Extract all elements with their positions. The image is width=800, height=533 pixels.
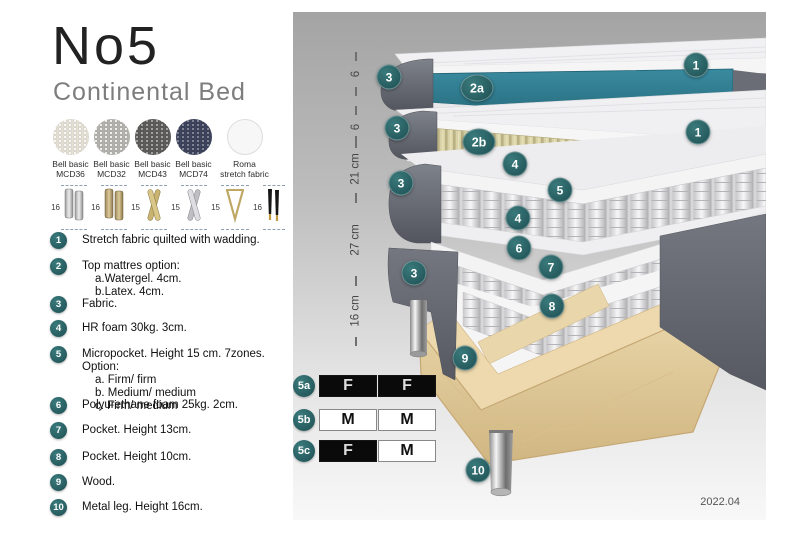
dimension-segment: 6	[343, 52, 369, 96]
dimension-tick	[355, 136, 357, 145]
spec-text: Fabric.	[82, 298, 117, 310]
version-label: 2022.04	[700, 496, 740, 508]
spec-text: Top mattres option:	[82, 260, 180, 272]
spec-number-badge: 7	[50, 422, 67, 439]
dimension-tick	[355, 337, 357, 346]
callout-badge: 3	[402, 261, 427, 286]
callout-badge: 6	[507, 236, 532, 261]
spec-list-item: 10 Metal leg. Height 16cm.	[50, 499, 203, 516]
spec-number-badge: 8	[50, 449, 67, 466]
dimension-tick	[355, 106, 357, 115]
dimension-segment: 27 cm	[343, 194, 369, 286]
callout-badge: 2b	[463, 129, 496, 156]
spec-list-item: 9 Wood.	[50, 474, 115, 491]
spec-list-item: 7 Pocket. Height 13cm.	[50, 422, 191, 439]
callout-badge: 10	[466, 458, 491, 483]
dimension-label: 27 cm	[350, 224, 362, 255]
spec-text: Wood.	[82, 476, 115, 488]
firmness-row: 5a F F	[293, 375, 437, 397]
callout-badge: 4	[506, 206, 531, 231]
spec-number-badge: 6	[50, 397, 67, 414]
spec-text: Polyurethane foam 25kg. 2cm.	[82, 399, 238, 411]
spec-number-badge: 1	[50, 232, 67, 249]
dimension-tick	[355, 276, 357, 285]
dimension-label: 6	[350, 71, 362, 77]
spec-list-item: 1 Stretch fabric quilted with wadding.	[50, 232, 260, 249]
spec-sheet: No5 Continental Bed Bell basic MCD36 Bel…	[0, 0, 800, 533]
spec-text: HR foam 30kg. 3cm.	[82, 322, 187, 334]
spec-number-badge: 9	[50, 474, 67, 491]
callout-badge: 7	[539, 255, 564, 280]
dimension-label: 16 cm	[350, 295, 362, 326]
callout-badge: 2a	[461, 75, 494, 102]
dimension-tick	[355, 52, 357, 61]
firmness-option-badge: 5a	[293, 375, 315, 397]
callout-badge: 3	[377, 65, 402, 90]
callout-badge: 5	[548, 178, 573, 203]
callout-badge: 9	[453, 346, 478, 371]
spec-list-item: 3 Fabric.	[50, 296, 117, 313]
spec-text: Pocket. Height 13cm.	[82, 424, 191, 436]
firmness-row: 5c F M	[293, 440, 437, 462]
spec-number-badge: 5	[50, 346, 67, 363]
spec-list: 1 Stretch fabric quilted with wadding. 2…	[50, 0, 300, 533]
spec-list-item: 8 Pocket. Height 10cm.	[50, 449, 191, 466]
dimension-segment: 16 cm	[343, 276, 369, 346]
spec-text: Micropocket. Height 15 cm. 7zones. Optio…	[82, 348, 265, 373]
callout-badge: 8	[540, 294, 565, 319]
firmness-cell: F	[378, 375, 436, 397]
dimension-label: 6	[350, 124, 362, 130]
callout-badge: 3	[389, 171, 414, 196]
dimension-tick	[355, 194, 357, 203]
dimension-tick	[355, 87, 357, 96]
dimension-segment: 21 cm	[343, 136, 369, 202]
spec-list-item: 4 HR foam 30kg. 3cm.	[50, 320, 187, 337]
spec-number-badge: 10	[50, 499, 67, 516]
diagram-panel: 6 6 21 cm 27 cm 16 cm	[293, 12, 766, 520]
callout-badge: 1	[684, 53, 709, 78]
spec-text: Pocket. Height 10cm.	[82, 451, 191, 463]
callout-badge: 1	[686, 120, 711, 145]
firmness-cell: M	[378, 409, 436, 431]
spec-list-item: 2 Top mattres option: a.Watergel. 4cm. b…	[50, 258, 182, 299]
callout-badge: 3	[385, 116, 410, 141]
spec-number-badge: 4	[50, 320, 67, 337]
firmness-cell: F	[319, 440, 377, 462]
callout-badge: 4	[503, 152, 528, 177]
firmness-option-badge: 5b	[293, 409, 315, 431]
dimension-label: 21 cm	[350, 153, 362, 184]
firmness-cell: M	[378, 440, 436, 462]
firmness-row: 5b M M	[293, 409, 437, 431]
spec-number-badge: 2	[50, 258, 67, 275]
firmness-option-badge: 5c	[293, 440, 315, 462]
spec-text: Stretch fabric quilted with wadding.	[82, 234, 260, 246]
spec-text: Metal leg. Height 16cm.	[82, 501, 203, 513]
firmness-cell: M	[319, 409, 377, 431]
layer-continental-base	[388, 212, 766, 496]
spec-number-badge: 3	[50, 296, 67, 313]
firmness-cell: F	[319, 375, 377, 397]
spec-list-item: 6 Polyurethane foam 25kg. 2cm.	[50, 397, 238, 414]
